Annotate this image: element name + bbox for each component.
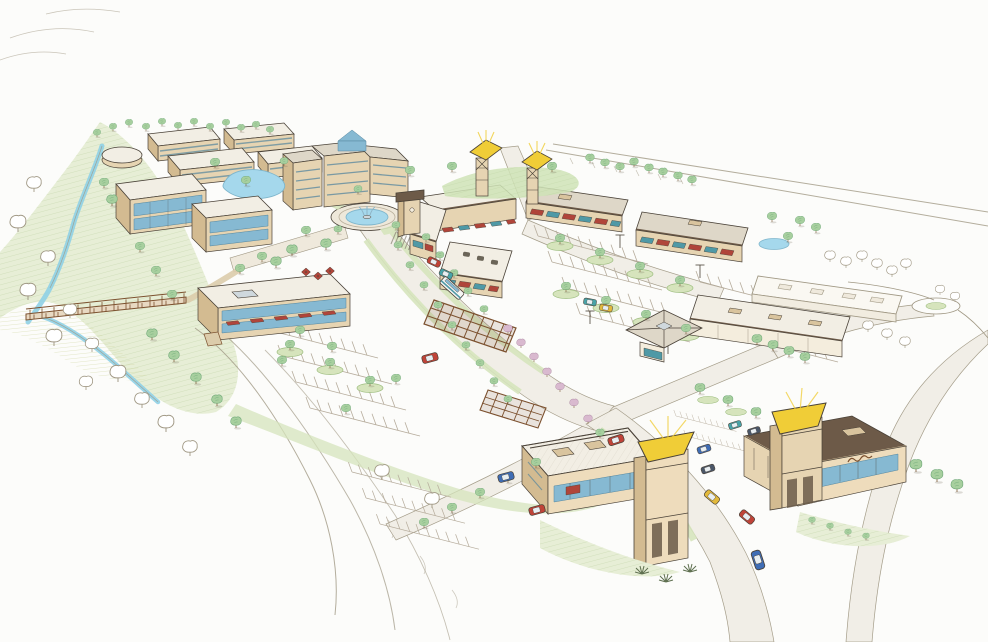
planting-island: [726, 408, 747, 415]
office-small-building: [192, 196, 272, 252]
sketch-canvas: [0, 0, 988, 642]
apartment-oval-building: [102, 147, 142, 168]
planting-island: [698, 396, 719, 403]
clock-tower: [396, 190, 424, 237]
site-rendering: [0, 0, 988, 642]
retail-pond: [759, 239, 789, 250]
